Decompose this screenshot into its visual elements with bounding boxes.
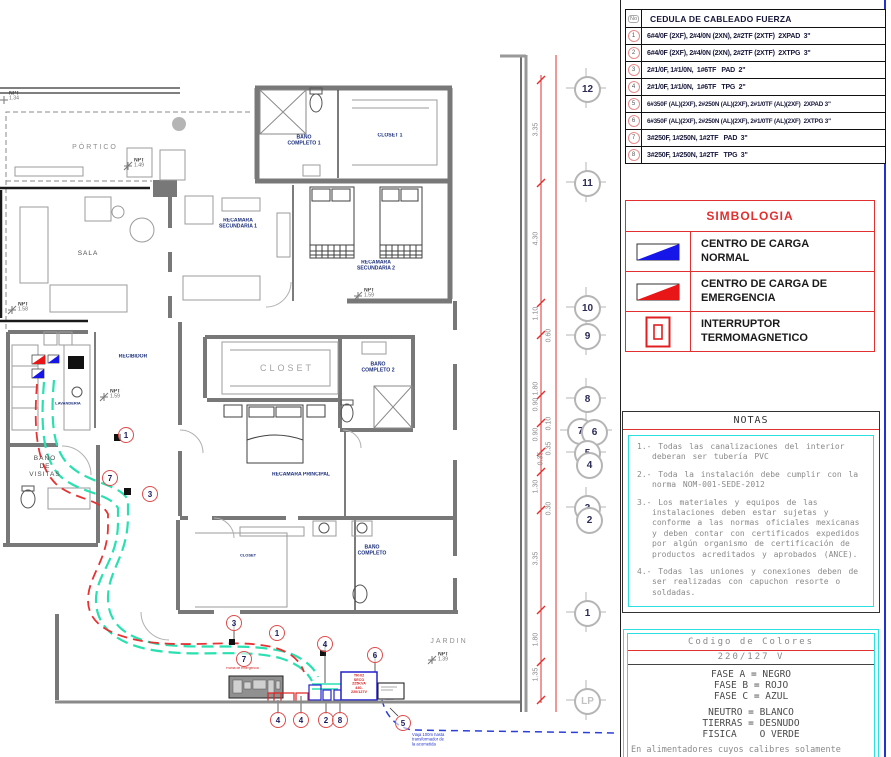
grid-bubble-11: 11 [574, 170, 601, 197]
dim-label: 0.90 [533, 422, 540, 448]
grid-bubble-2: 2 [576, 507, 603, 534]
side-table [112, 206, 124, 218]
dim-label: 0.90 [533, 392, 540, 418]
legend-title: SIMBOLOGIA [626, 201, 874, 232]
npt-marker: NPT1.49 [134, 158, 144, 169]
codigo-footer: En alimentadores cuyos calibres solament… [628, 745, 874, 755]
furniture-outlines [12, 100, 437, 607]
planter-circle [172, 117, 186, 131]
circuit-marker-5: 5 [395, 715, 411, 731]
electrical-floor-plan-sheet: PÓRTICO SALA RECAMARA SECUNDARIA 1 RECAM… [0, 0, 891, 757]
nota-item: 2.- Toda la instalación debe cumplir con… [637, 470, 867, 491]
npt-marker: NPT1.59 [110, 389, 120, 400]
transformer-label: TR-02 SECO 225KVA 440-220/127V [348, 674, 370, 695]
dimension-lines [541, 55, 556, 712]
legend-item: CENTRO DE CARGA NORMAL [626, 232, 874, 272]
route-emergency [36, 384, 304, 672]
circuit-marker-8: 8 [332, 712, 348, 728]
circuit-marker-4b: 4 [270, 712, 286, 728]
showers [260, 90, 412, 428]
circuit-marker-3b: 3 [226, 615, 242, 631]
dim-label: 0.60 [546, 323, 553, 349]
table-header-row: No CEDULA DE CABLEADO FUERZA [626, 10, 885, 27]
circuit-marker-4: 4 [317, 636, 333, 652]
npt-marker: NPT1.58 [18, 302, 28, 313]
grid-bubble-12: 12 [574, 76, 601, 103]
dim-label: 0.35 [538, 446, 545, 472]
grid-bubble-lp: LP [574, 688, 601, 715]
dim-label: 4.30 [533, 226, 540, 252]
nota-item: 1.- Todas las canalizaciones del interio… [637, 442, 867, 463]
interruptor-termomagnetico-icon [645, 316, 671, 348]
centro-carga-emergencia-icon [636, 283, 680, 301]
beds [224, 187, 422, 463]
dim-label: 3.35 [533, 546, 540, 572]
generator-label: Planta de emergencia [226, 667, 265, 670]
legend-item: INTERRUPTOR TERMOMAGNETICO [626, 312, 874, 351]
grid-bubble-1: 1 [574, 600, 601, 627]
table-row: 73#250F, 1#250N, 1#2TF PAD 3" [626, 129, 885, 146]
conductor-line: TIERRAS = DESNUDO [628, 718, 874, 729]
dim-label: 1.35 [533, 662, 540, 688]
dim-label: 0.30 [546, 496, 553, 522]
npt-marker: NPT1.39 [438, 652, 448, 663]
nota-item: 3.- Los materiales y equipos de las inst… [637, 498, 867, 560]
stove [68, 356, 84, 369]
red-divider [623, 429, 879, 430]
dim-label: 1.10 [533, 301, 540, 327]
dim-label: 1.30 [533, 474, 540, 500]
fase-line: FASE C = AZUL [628, 691, 874, 702]
codigo-title: Codigo de Colores [628, 634, 874, 647]
circuit-marker-1: 1 [118, 427, 134, 443]
dim-label: 0.10 [546, 411, 553, 437]
circuit-marker-7: 7 [102, 470, 118, 486]
centro-carga-normal-icon [636, 243, 680, 261]
sheet-divider-line [620, 0, 621, 757]
npt-marker: NPT1.34 [9, 91, 19, 102]
cedula-cableado-table: No CEDULA DE CABLEADO FUERZA 16#4/0F (2X… [625, 9, 886, 164]
circuit-marker-4c: 4 [293, 712, 309, 728]
dim-label: 1.80 [533, 627, 540, 653]
no-header: No [628, 15, 639, 23]
grid-bubble-8: 8 [574, 386, 601, 413]
grid-bubble-10: 10 [574, 295, 601, 322]
circuit-marker-7b: 7 [236, 651, 252, 667]
circuit-marker-3: 3 [142, 486, 158, 502]
npt-marker: NPT1.59 [364, 288, 374, 299]
circuit-marker-6: 6 [367, 647, 383, 663]
table-row: 56#350F (AL)(2XF), 2#250N (AL)(2XF), 2#1… [626, 95, 885, 112]
table-row: 83#250F, 1#250N, 1#2TF TPG 3" [626, 146, 885, 163]
codigo-colores-panel: Codigo de Colores 220/127 V FASE A = NEG… [623, 629, 879, 757]
interruptor-box [378, 683, 404, 699]
boundary-line-gray [500, 55, 526, 712]
dim-label: 0.35 [546, 436, 553, 462]
legend-item: CENTRO DE CARGA DE EMERGENCIA [626, 272, 874, 312]
table-row: 32#1/0F, 1#1/0N, 1#6TF PAD 2" [626, 61, 885, 78]
notas-title: NOTAS [623, 412, 879, 429]
tap-boxes [114, 434, 326, 656]
round-chair [130, 218, 154, 242]
table-row: 16#4/0F (2XF), 2#4/0N (2XN), 2#2TF (2XTF… [626, 27, 885, 44]
notas-panel: NOTAS 1.- Todas las canalizaciones del i… [622, 411, 880, 613]
window-gaps [138, 228, 459, 615]
floor-plan-drawing [0, 0, 620, 757]
acometida-note: Viaja 100m hasta transformador de la aco… [412, 733, 475, 747]
voltage-label: 220/127 V [628, 651, 874, 665]
nota-item: 4.- Todas las uniones y conexiones deben… [637, 567, 867, 598]
top-eave-line [0, 88, 180, 93]
notas-body: 1.- Todas las canalizaciones del interio… [628, 435, 874, 607]
simbologia-legend: SIMBOLOGIA CENTRO DE CARGA NORMAL CENTRO… [625, 200, 875, 352]
table-title: CEDULA DE CABLEADO FUERZA [642, 14, 792, 24]
table-row: 26#4/0F (2XF), 2#4/0N (2XN), 2#2TF (2XTF… [626, 44, 885, 61]
conductor-line: NEUTRO = BLANCO [628, 707, 874, 718]
conductor-line: FISICA O VERDE [628, 729, 874, 740]
table-row: 66#350F (AL)(2XF), 2#250N (AL)(2XF), 2#1… [626, 112, 885, 129]
circuit-marker-1b: 1 [269, 625, 285, 641]
fase-line: FASE B = ROJO [628, 680, 874, 691]
column [153, 180, 177, 197]
codigo-inner: Codigo de Colores 220/127 V FASE A = NEG… [627, 633, 875, 757]
grid-bubble-4: 4 [576, 452, 603, 479]
dim-label: 3.35 [533, 117, 540, 143]
fase-line: FASE A = NEGRO [628, 669, 874, 680]
table-row: 42#1/0F, 1#1/0N, 1#6TF TPG 2" [626, 78, 885, 95]
grid-bubble-9: 9 [574, 323, 601, 350]
